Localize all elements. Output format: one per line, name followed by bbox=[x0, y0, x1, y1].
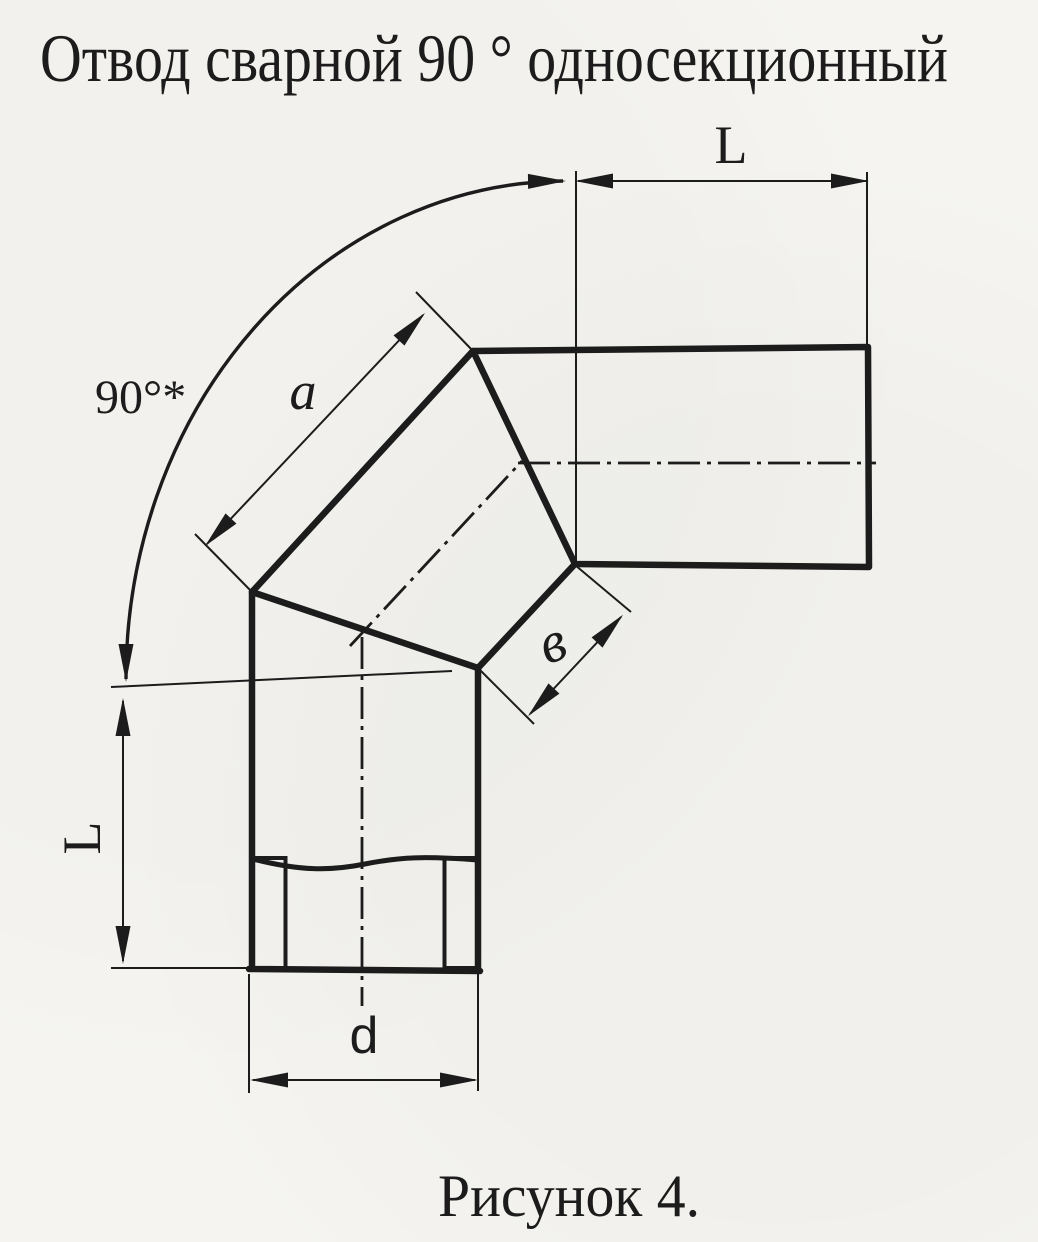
sleeve-wall-left bbox=[253, 858, 286, 968]
extension-line bbox=[575, 565, 631, 612]
centerline-middle-section bbox=[350, 461, 522, 646]
extension-line bbox=[111, 671, 452, 687]
angle-arc bbox=[126, 181, 563, 679]
section-outer-label: a bbox=[290, 361, 317, 421]
scanned-drawing-sheet: Отвод сварной 90 ° односекционный 90°* L bbox=[0, 0, 1038, 1242]
angle-label: 90°* bbox=[95, 371, 186, 424]
extension-line bbox=[478, 668, 534, 724]
centerlines bbox=[350, 461, 876, 1006]
section-inner-label: в bbox=[529, 607, 575, 677]
angle-arc-group: 90°* bbox=[95, 181, 563, 679]
figure-caption: Рисунок 4. bbox=[438, 1163, 700, 1229]
dimension-d: d bbox=[249, 974, 478, 1093]
dimension-L-top: L bbox=[576, 115, 867, 563]
length-top-label: L bbox=[715, 115, 748, 175]
sleeve-wall-right bbox=[445, 858, 478, 968]
diameter-label: d bbox=[350, 1007, 379, 1065]
dimension-line bbox=[207, 315, 423, 544]
extension-line bbox=[416, 292, 473, 351]
length-left-label: L bbox=[52, 822, 112, 855]
extension-line bbox=[195, 534, 252, 592]
dimension-a: a bbox=[195, 292, 473, 592]
elbow-technical-drawing: Отвод сварной 90 ° односекционный 90°* L bbox=[0, 0, 1038, 1242]
page-title: Отвод сварной 90 ° односекционный bbox=[40, 20, 948, 96]
horizontal-pipe-outline bbox=[473, 347, 869, 567]
sleeve-hatching bbox=[253, 858, 478, 968]
